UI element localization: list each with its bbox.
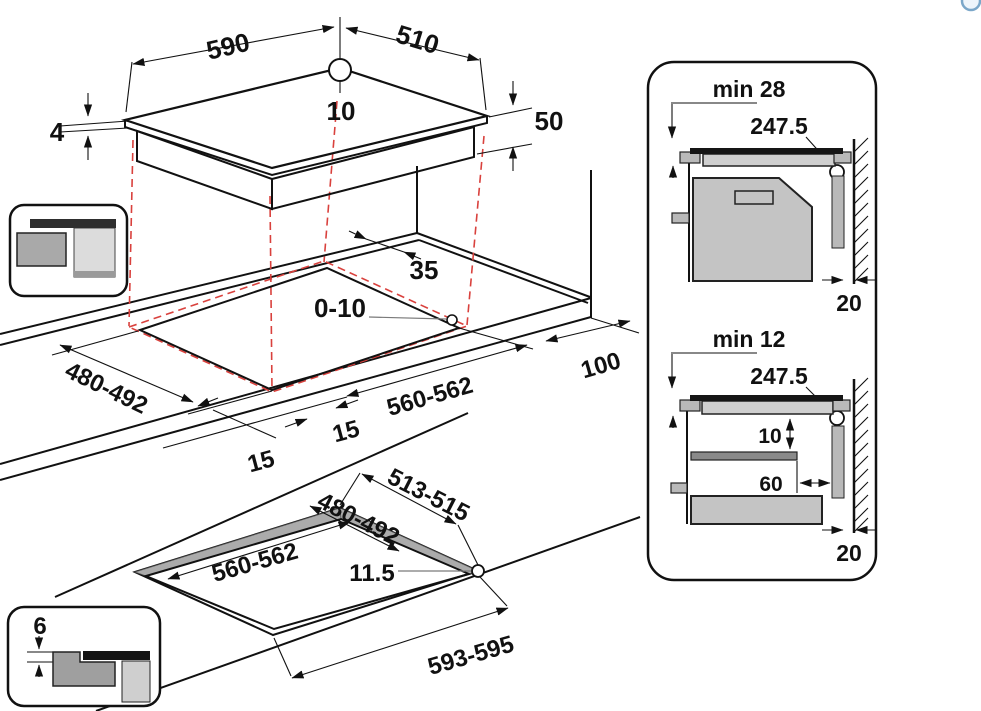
inset-cabinet-base [74,271,115,277]
hob-body-section-bottom [702,401,833,414]
recess-width-ext-2 [480,577,507,606]
worktop-cutout-outline [140,268,459,390]
inset-cabinet [74,228,115,277]
label-hole-center-drawer: 247.5 [750,363,808,389]
projection-line-left [129,140,133,326]
installation-diagram: 35 0-10 480-492 15 15 560-562 100 590 51… [0,0,981,711]
glass-ext-2 [60,128,128,132]
dim-hole-offset-range: 0-10 [314,293,366,323]
hob-hole-circle [329,59,351,81]
worktop-front-edge-2 [0,317,591,480]
dim-recess-width-range: 593-595 [425,631,517,681]
label-min-top-oven: min 28 [713,76,786,102]
clamp-left-bottom [680,400,700,411]
label-hole-center-oven: 247.5 [750,113,808,139]
clearance-arrow-b [285,419,307,427]
rear-gap-arrow-1 [349,231,366,239]
flush-inset-icon: 6 [8,607,160,706]
hob-width-ext [126,62,132,112]
clearance-ext-line [213,410,276,438]
hob-glass-section-top [690,148,843,154]
body-ext-1 [489,108,532,117]
hob-glass-top-face [125,68,487,168]
clearance-panel: min 28 247.5 20 [648,62,876,580]
oven-vent [735,191,773,204]
cutout-right-ext [459,328,533,349]
label-wall-gap-oven: 20 [836,290,862,316]
dim-recess-step: 6 [33,613,46,640]
hob-glass-section-bottom [690,395,843,401]
hole-projection-circle [447,315,457,325]
dim-clearance-right: 15 [330,415,363,448]
dim-cutout-depth: 480-492 [61,357,152,420]
hob-body-section-top [703,154,835,166]
label-shelf-setback: 60 [759,473,782,496]
label-shelf-gap: 10 [758,425,781,448]
flush-glass-bar [83,651,150,660]
inset-oven [17,233,66,266]
wall-base-right-2 [419,240,588,303]
dim-side-clearance: 100 [578,347,624,384]
dim-rear-gap: 35 [410,255,439,285]
drawer-body [691,496,822,524]
width-dim-extension [163,397,347,448]
dim-glass-thickness: 4 [50,117,65,147]
flush-hole-circle [472,565,484,577]
hob-body-left-face [137,131,272,209]
flush-cabinet [122,661,150,702]
side-clearance-dim-line [546,321,630,341]
rear-duct-bottom [832,426,844,498]
dim-recess-depth-range: 513-515 [383,463,474,527]
label-wall-gap-drawer: 20 [836,540,862,566]
clamp-right-bottom [833,400,850,411]
dim-hob-depth: 510 [392,19,442,60]
dim-flush-hole-offset: 11.5 [349,560,394,587]
hob-depth-ext [480,58,486,110]
rear-duct-top [832,176,844,248]
body-ext-2 [477,144,532,154]
dim-body-height: 50 [535,106,564,136]
dim-clearance-left: 15 [245,445,278,478]
projection-line-front [270,196,272,391]
overhang-inset-icon [10,205,127,296]
wall-base-ext [591,318,639,333]
dim-hob-width: 590 [203,27,252,66]
page-corner-icon [962,0,980,10]
projection-line-right [467,136,484,325]
wall-base-right [417,233,590,297]
recess-depth-ext-2 [458,525,478,565]
cabinet-tab-top [672,213,689,223]
dim-cutout-width: 560-562 [384,372,476,422]
inset-hob-glass [30,219,116,228]
glass-ext-1 [60,121,128,126]
shelf-bar [691,452,797,460]
cutout-depth-ext-1 [52,331,138,355]
refresh-icon [962,0,980,10]
label-min-top-drawer: min 12 [713,326,786,352]
hob-isometric-view: 590 510 10 4 50 [50,17,564,209]
flush-worktop-front-edge [96,517,640,711]
cutout-depth-ext-2 [188,391,272,414]
installation-diagram-page: 35 0-10 480-492 15 15 560-562 100 590 51… [0,0,981,711]
clearance-arrow-c [336,400,358,408]
dim-hole-diameter: 10 [327,96,356,126]
cabinet-tab-bottom [671,483,687,493]
